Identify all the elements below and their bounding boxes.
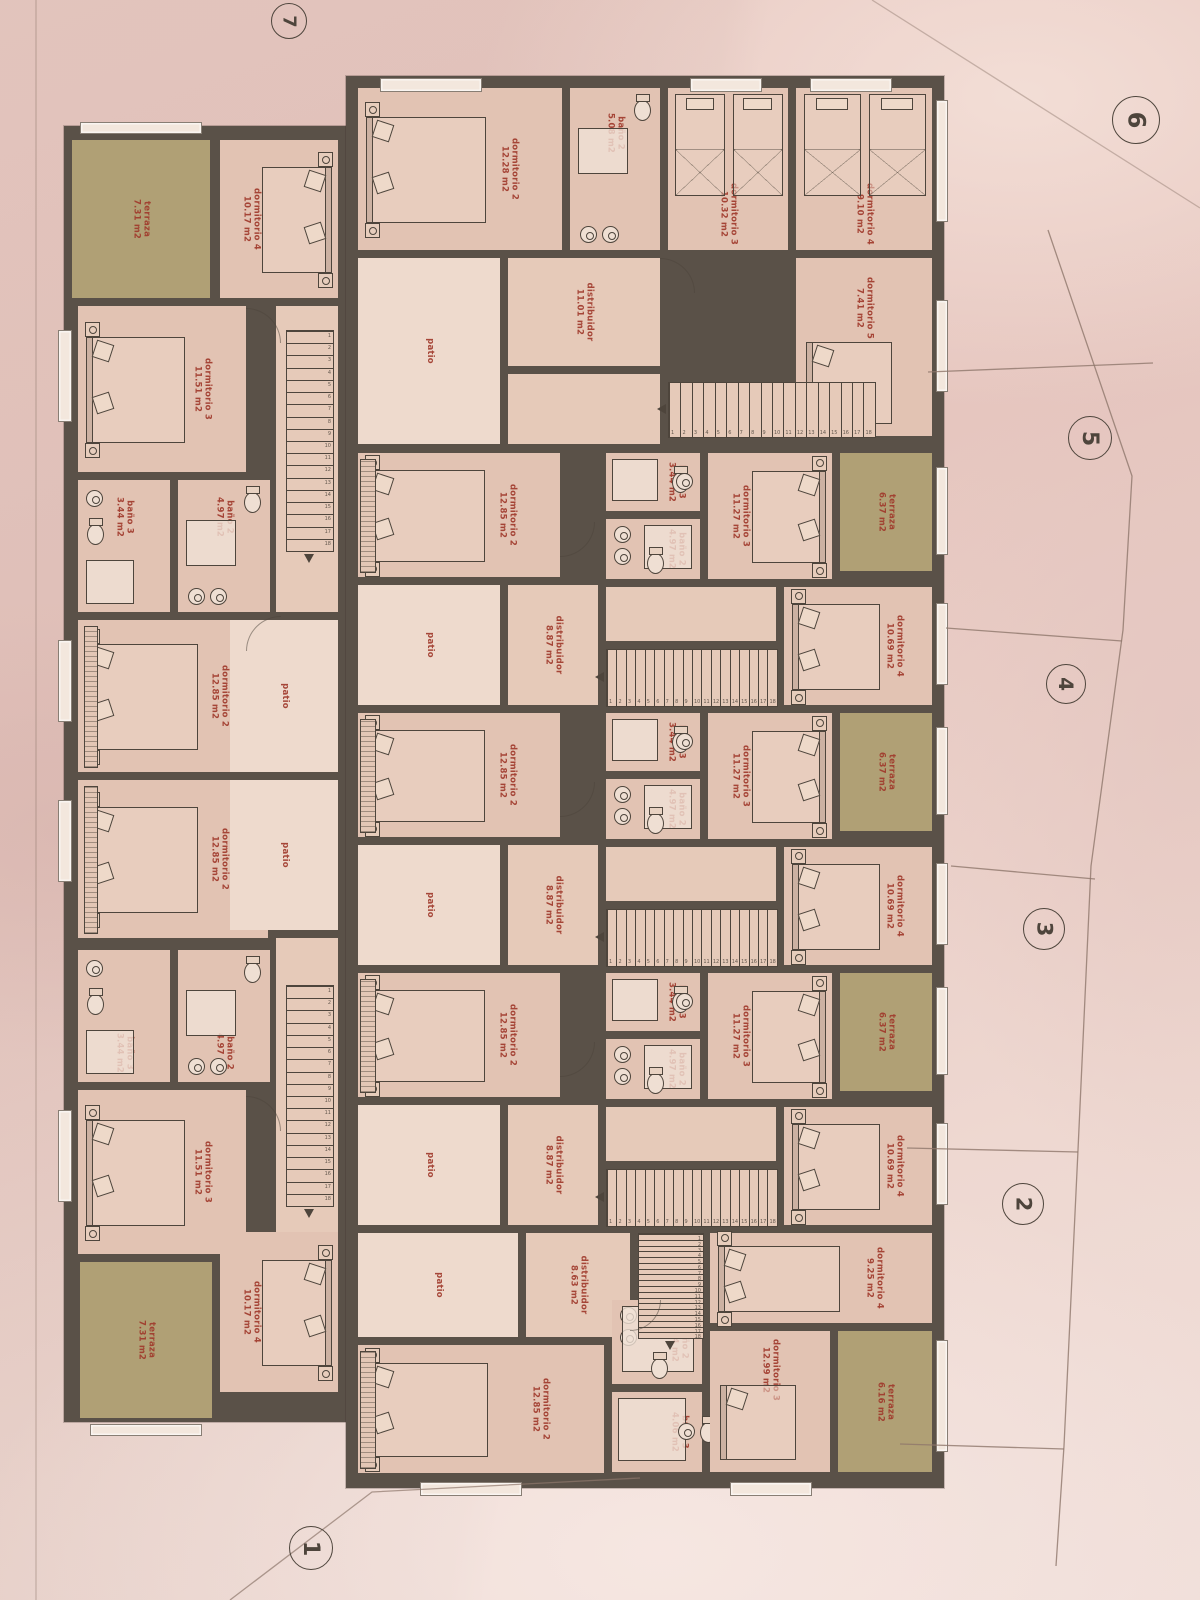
lot-number: 4	[1054, 677, 1078, 691]
floor-plan-photo: terraza7.31 m2dormitorio 410.17 m2dormit…	[0, 0, 1200, 1600]
lot-number: 1	[299, 1540, 324, 1555]
lot-marker-5: 5	[1068, 416, 1112, 460]
lot-number: 7	[278, 15, 299, 27]
boundary-line	[928, 363, 1153, 372]
boundary-line	[951, 866, 1095, 879]
lot-marker-6: 6	[1112, 96, 1160, 144]
boundary-line	[946, 628, 1122, 641]
lot-marker-3: 3	[1023, 908, 1065, 950]
boundary-line	[900, 1444, 1064, 1449]
lot-number: 3	[1032, 922, 1056, 937]
plot-boundary-lines	[0, 0, 1200, 1600]
lot-number: 5	[1078, 430, 1103, 445]
lot-marker-4: 4	[1046, 664, 1086, 704]
lot-marker-2: 2	[1002, 1183, 1044, 1225]
lot-marker-7: 7	[271, 3, 307, 39]
lot-number: 6	[1122, 112, 1150, 129]
lot-marker-1: 1	[289, 1526, 333, 1570]
lot-number: 2	[1011, 1197, 1035, 1212]
boundary-line	[907, 1148, 1078, 1152]
